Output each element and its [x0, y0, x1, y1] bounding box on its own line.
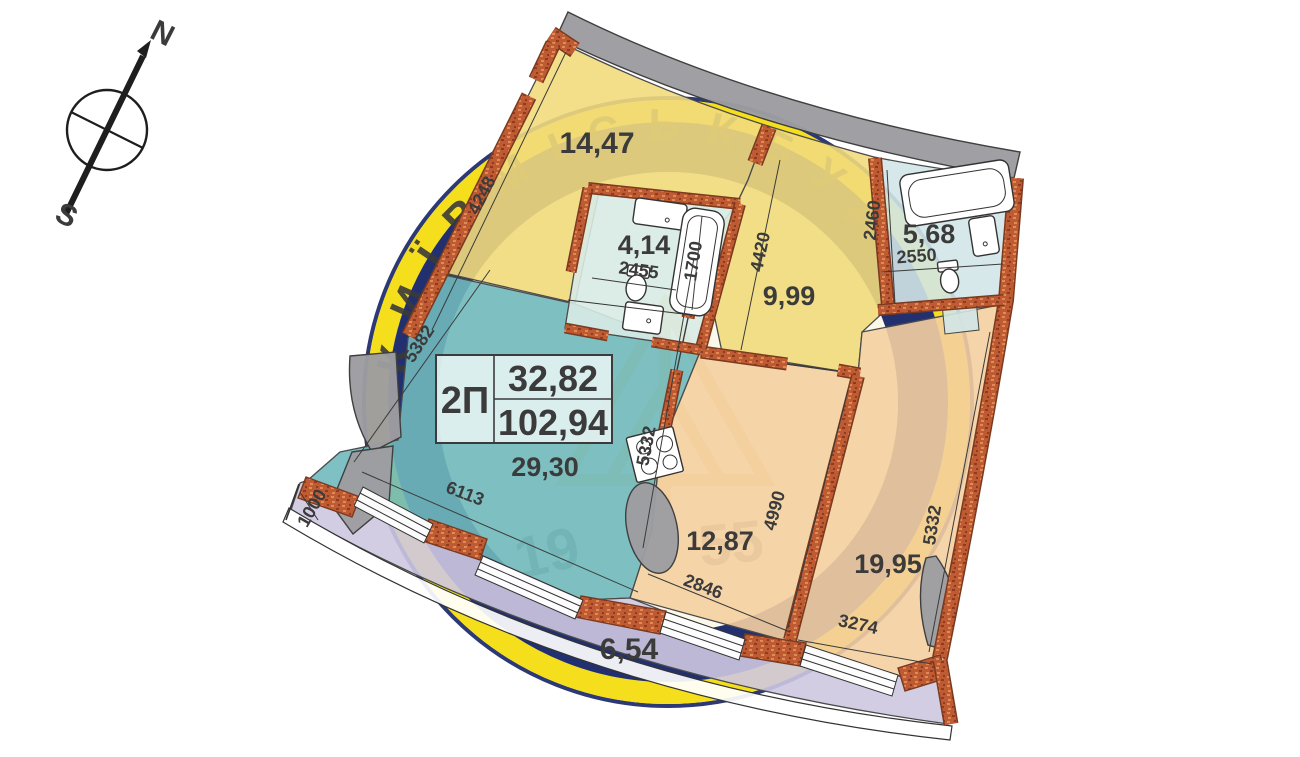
washing-machine-icon [622, 301, 664, 334]
room-area-bathroom-large: 5,68 [903, 219, 956, 249]
sink-icon [968, 215, 1000, 257]
compass-south-label: S [50, 196, 83, 234]
floor-plan-page: N S КИЇВМІСЬКБУД 19 55 [0, 0, 1300, 757]
total-area-value: 102,94 [498, 402, 608, 443]
title-block: 2П 32,82 102,94 [436, 355, 612, 443]
room-area-balcony: 6,54 [600, 633, 659, 666]
room-area-bedroom: 14,47 [559, 127, 634, 160]
apartment-type-label: 2П [441, 380, 489, 422]
compass: N S [50, 14, 180, 235]
room-area-bathroom-small: 4,14 [618, 230, 671, 260]
room-area-right: 19,95 [854, 549, 922, 579]
living-area-value: 32,82 [508, 358, 598, 399]
compass-needle [66, 56, 143, 214]
room-area-living-kitchen: 29,30 [511, 452, 579, 482]
floor-plan-svg: N S КИЇВМІСЬКБУД 19 55 [0, 0, 1300, 757]
room-area-hallway: 9,99 [763, 281, 816, 311]
room-area-middle: 12,87 [686, 526, 754, 556]
compass-cross-line [71, 112, 143, 148]
compass-north-label: N [145, 14, 179, 53]
column-left [349, 352, 401, 452]
